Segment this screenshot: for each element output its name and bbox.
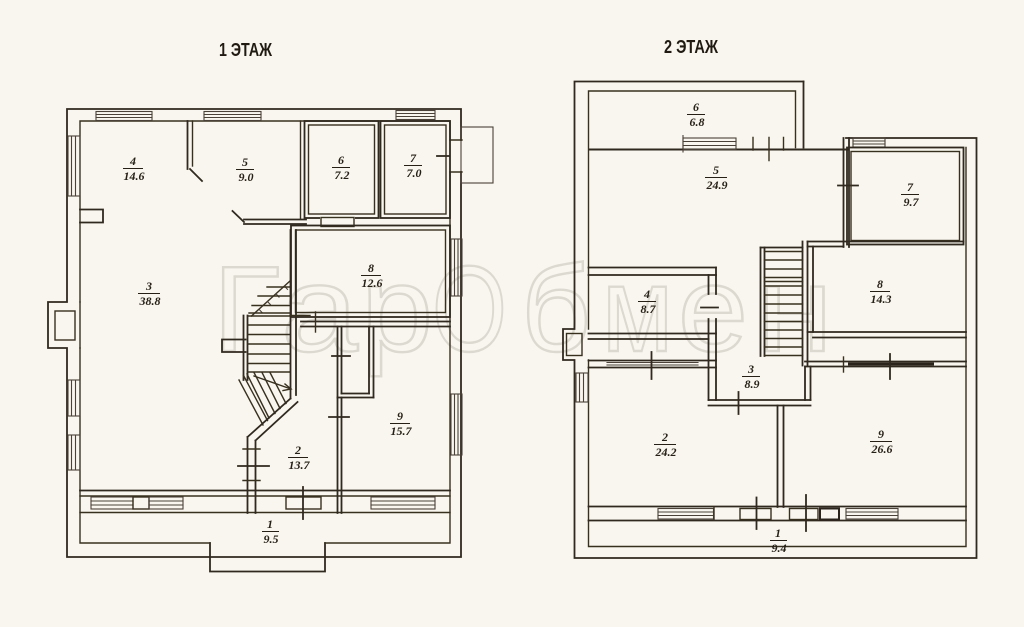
svg-text:8.9: 8.9 <box>745 377 760 391</box>
svg-text:9: 9 <box>878 427 884 441</box>
svg-text:5: 5 <box>713 163 719 177</box>
svg-text:9.7: 9.7 <box>904 195 920 209</box>
svg-text:9.4: 9.4 <box>772 541 787 555</box>
svg-text:13.7: 13.7 <box>289 458 311 472</box>
svg-text:м: м <box>602 241 673 377</box>
svg-text:5: 5 <box>242 155 248 169</box>
svg-text:н: н <box>757 241 833 377</box>
svg-text:6: 6 <box>338 153 344 167</box>
svg-text:4: 4 <box>643 287 650 301</box>
svg-text:2 ЭТАЖ: 2 ЭТАЖ <box>664 37 719 57</box>
svg-text:38.8: 38.8 <box>139 294 161 308</box>
svg-text:7: 7 <box>410 151 417 165</box>
svg-text:Г: Г <box>213 241 280 377</box>
svg-text:7.2: 7.2 <box>335 168 350 182</box>
svg-text:24.2: 24.2 <box>655 445 677 459</box>
svg-text:О: О <box>432 241 507 377</box>
svg-text:8: 8 <box>877 277 883 291</box>
svg-text:8.7: 8.7 <box>641 302 657 316</box>
svg-text:9.0: 9.0 <box>239 170 254 184</box>
svg-text:4: 4 <box>129 154 136 168</box>
svg-text:14.6: 14.6 <box>124 169 145 183</box>
svg-text:7: 7 <box>907 180 914 194</box>
svg-text:15.7: 15.7 <box>391 424 413 438</box>
svg-text:9: 9 <box>397 409 403 423</box>
svg-text:б: б <box>521 241 591 377</box>
svg-text:1: 1 <box>775 526 781 540</box>
svg-text:е: е <box>678 241 748 377</box>
svg-text:3: 3 <box>145 279 152 293</box>
svg-text:6.8: 6.8 <box>690 115 705 129</box>
svg-text:3: 3 <box>747 362 754 376</box>
svg-text:1: 1 <box>267 517 273 531</box>
svg-text:6: 6 <box>693 100 699 114</box>
svg-text:2: 2 <box>661 430 668 444</box>
svg-text:12.6: 12.6 <box>362 276 383 290</box>
svg-text:14.3: 14.3 <box>871 292 892 306</box>
svg-text:2: 2 <box>294 443 301 457</box>
svg-text:26.6: 26.6 <box>871 442 893 456</box>
svg-text:8: 8 <box>368 261 374 275</box>
svg-text:9.5: 9.5 <box>264 532 279 546</box>
svg-text:7.0: 7.0 <box>407 166 422 180</box>
svg-text:1 ЭТАЖ: 1 ЭТАЖ <box>219 40 273 60</box>
svg-text:24.9: 24.9 <box>706 178 728 192</box>
